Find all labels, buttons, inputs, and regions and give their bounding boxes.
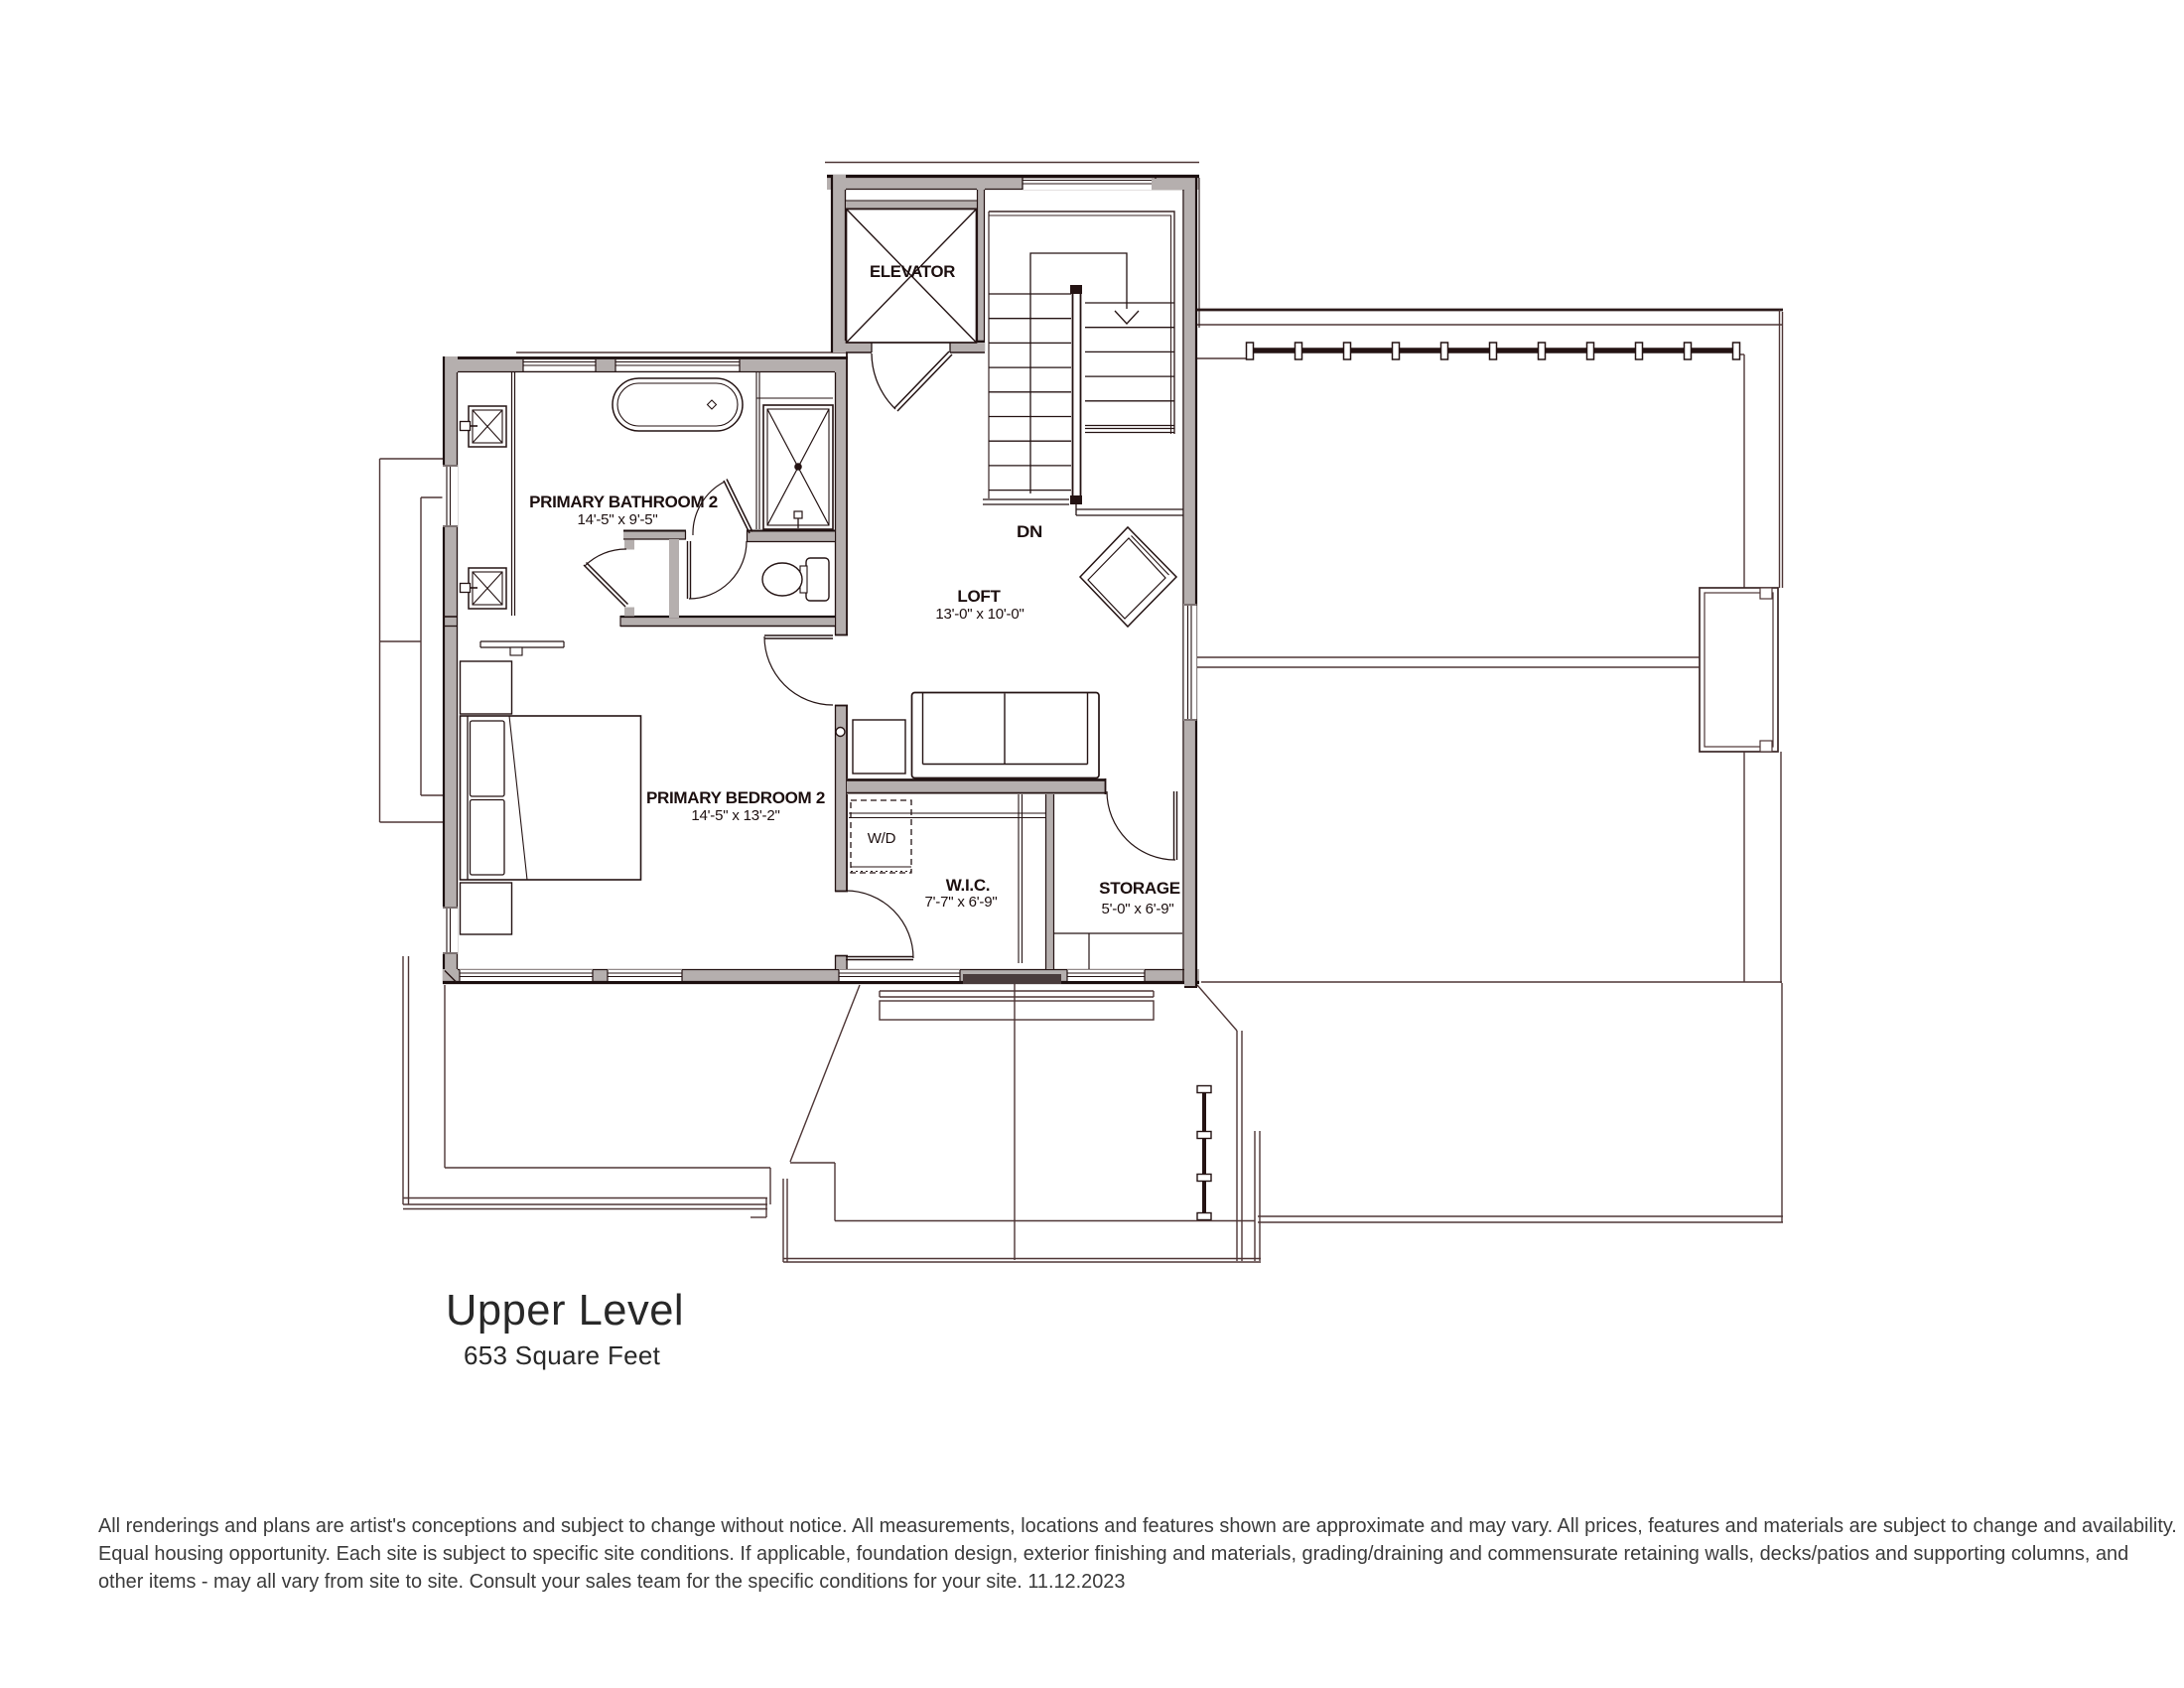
svg-text:5'-0" x 6'-9": 5'-0" x 6'-9" [1102,901,1174,917]
svg-text:7'-7" x 6'-9": 7'-7" x 6'-9" [925,894,998,911]
svg-text:ELEVATOR: ELEVATOR [870,262,955,281]
svg-text:STORAGE: STORAGE [1099,879,1180,898]
svg-text:W/D: W/D [868,830,896,847]
svg-text:PRIMARY BEDROOM 2: PRIMARY BEDROOM 2 [646,788,825,807]
svg-text:14'-5" x 9'-5": 14'-5" x 9'-5" [577,511,657,528]
svg-text:other items - may all vary fro: other items - may all vary from site to … [98,1571,1125,1593]
svg-text:Upper Level: Upper Level [446,1287,684,1335]
svg-text:All renderings and plans are a: All renderings and plans are artist's co… [98,1515,2177,1537]
svg-text:PRIMARY BATHROOM 2: PRIMARY BATHROOM 2 [529,492,718,511]
svg-text:W.I.C.: W.I.C. [946,876,990,895]
svg-text:LOFT: LOFT [957,587,1001,606]
svg-text:DN: DN [1017,522,1042,541]
svg-text:14'-5" x 13'-2": 14'-5" x 13'-2" [691,807,779,824]
svg-text:Equal housing opportunity. Eac: Equal housing opportunity. Each site is … [98,1543,2128,1565]
svg-text:653 Square Feet: 653 Square Feet [464,1340,661,1370]
svg-text:13'-0" x 10'-0": 13'-0" x 10'-0" [935,606,1024,623]
